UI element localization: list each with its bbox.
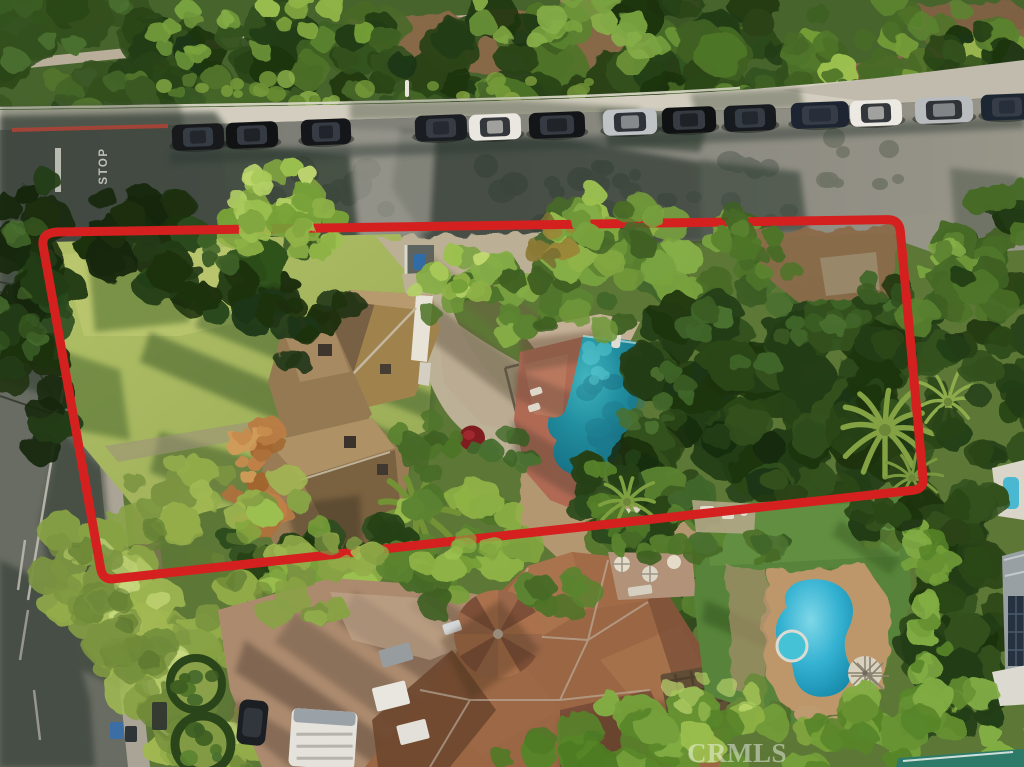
svg-text:CRMLS: CRMLS	[687, 738, 787, 767]
svg-text:STOP: STOP	[98, 147, 110, 184]
